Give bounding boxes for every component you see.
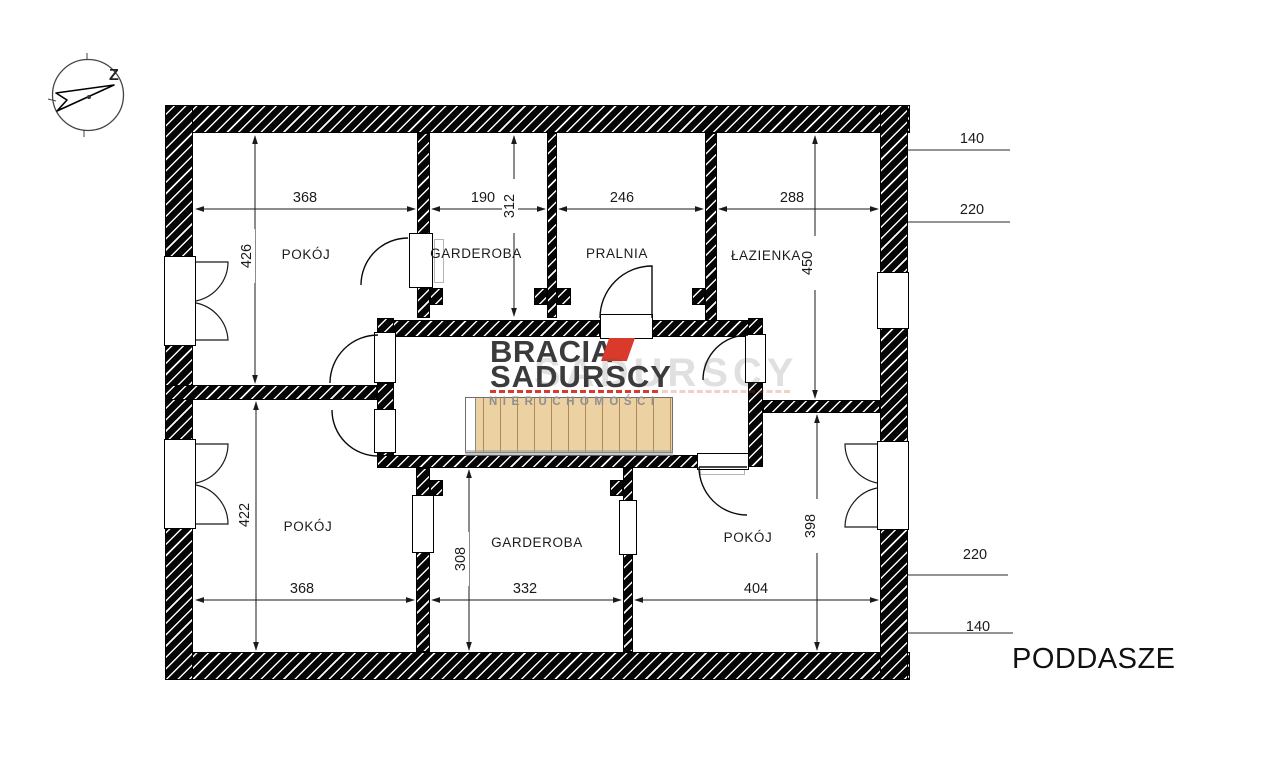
knee-wall-note-top-140: 140 xyxy=(944,131,1000,147)
door-opening-hall-lazienka xyxy=(745,334,766,383)
staircase-shadow xyxy=(465,450,673,456)
compass-icon xyxy=(48,53,124,137)
floor-title: PODDASZE xyxy=(1012,643,1176,676)
wall-between-left-rooms xyxy=(165,385,377,400)
passage-garderoba-bottom-right xyxy=(619,500,637,555)
logo-tagline: NIERUCHOMOŚCI xyxy=(489,396,660,408)
wall-tab xyxy=(534,288,547,305)
passage-garderoba-bottom-left xyxy=(412,495,434,553)
room-label-pralnia: PRALNIA xyxy=(567,246,667,261)
wall-tab xyxy=(557,288,571,305)
hall-wall-left-seg xyxy=(377,383,394,410)
room-label-pokoj-tl: POKÓJ xyxy=(256,247,356,262)
room-label-pokoj-bl: POKÓJ xyxy=(258,519,358,534)
wall-pokoj-garderoba-top xyxy=(417,133,430,318)
outer-wall-top xyxy=(165,105,910,133)
dim-pralnia-width: 246 xyxy=(587,190,657,206)
window-pokoj-bl xyxy=(164,439,196,529)
dim-garderoba-bottom-width: 332 xyxy=(490,581,560,597)
logo-ghost-rule xyxy=(662,390,790,393)
room-label-pokoj-br: POKÓJ xyxy=(698,530,798,545)
window-lazienka xyxy=(877,272,909,329)
door-opening-hall-pokoj-bl xyxy=(374,409,396,453)
hall-wall-bottom xyxy=(377,455,698,468)
dim-pokoj-br-height: 398 xyxy=(803,499,819,553)
window-pokoj-br xyxy=(877,441,909,530)
knee-wall-note-bottom-220: 220 xyxy=(947,547,1003,563)
hall-wall-right-seg xyxy=(748,381,763,467)
dim-garderoba-top-height: 312 xyxy=(502,179,518,233)
outer-wall-right xyxy=(880,105,908,680)
floor-plan: Z POKÓJ GARDEROBA PRALNIA ŁAZIENKA POKÓJ… xyxy=(0,0,1280,766)
wall-tab xyxy=(610,480,623,496)
dim-pokoj-br-width: 404 xyxy=(721,581,791,597)
wall-tab xyxy=(430,288,443,305)
dim-pokoj-bl-height: 422 xyxy=(237,488,253,542)
dim-pokoj-tl-height: 426 xyxy=(239,229,255,283)
wall-pralnia-lazienka xyxy=(705,133,717,322)
wall-garderoba-pokoj-bottom-right xyxy=(623,468,633,652)
staircase-first-step xyxy=(466,398,476,452)
room-label-garderoba-bottom: GARDEROBA xyxy=(487,535,587,550)
knee-wall-note-top-220: 220 xyxy=(944,202,1000,218)
door-opening-pokoj-br xyxy=(697,453,749,470)
outer-wall-bottom xyxy=(165,652,910,680)
dim-garderoba-bottom-height: 308 xyxy=(453,532,469,586)
dim-pokoj-bl-width: 368 xyxy=(267,581,337,597)
knee-wall-note-bottom-140: 140 xyxy=(950,619,1006,635)
wall-tab xyxy=(692,288,705,305)
dim-lazienka-height: 450 xyxy=(800,236,816,290)
dim-pokoj-tl-width: 368 xyxy=(270,190,340,206)
compass-label: Z xyxy=(109,67,119,85)
wall-tab xyxy=(430,480,443,496)
dim-lazienka-width: 288 xyxy=(757,190,827,206)
wall-garderoba-pralnia xyxy=(547,133,557,318)
window-pokoj-tl xyxy=(164,256,196,346)
door-opening-hall-pokoj-tl xyxy=(374,332,396,383)
wall-lazienka-pokoj xyxy=(763,400,880,413)
logo-rule xyxy=(490,390,658,393)
room-label-garderoba-top: GARDEROBA xyxy=(426,246,526,261)
